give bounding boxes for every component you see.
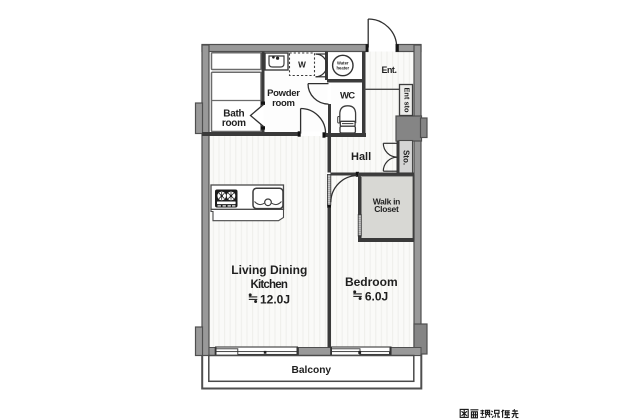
svg-text:Ent sto: Ent sto xyxy=(402,87,411,113)
svg-text:Hall: Hall xyxy=(351,151,371,163)
svg-text:Balcony: Balcony xyxy=(291,365,331,376)
svg-text:Sto.: Sto. xyxy=(402,150,411,165)
svg-text:Kitchen: Kitchen xyxy=(251,279,288,291)
svg-text:Closet: Closet xyxy=(374,204,399,214)
svg-text:Bedroom: Bedroom xyxy=(345,275,398,289)
svg-text:W: W xyxy=(298,60,306,69)
svg-text:Ent.: Ent. xyxy=(381,65,396,75)
svg-text:room: room xyxy=(222,118,246,129)
svg-text:room: room xyxy=(272,98,295,109)
svg-text:heater: heater xyxy=(337,65,350,70)
svg-text:WC: WC xyxy=(340,90,355,101)
svg-text:Living Dining: Living Dining xyxy=(231,263,307,277)
svg-text:12.0J: 12.0J xyxy=(260,292,290,306)
svg-text:6.0J: 6.0J xyxy=(365,289,388,303)
